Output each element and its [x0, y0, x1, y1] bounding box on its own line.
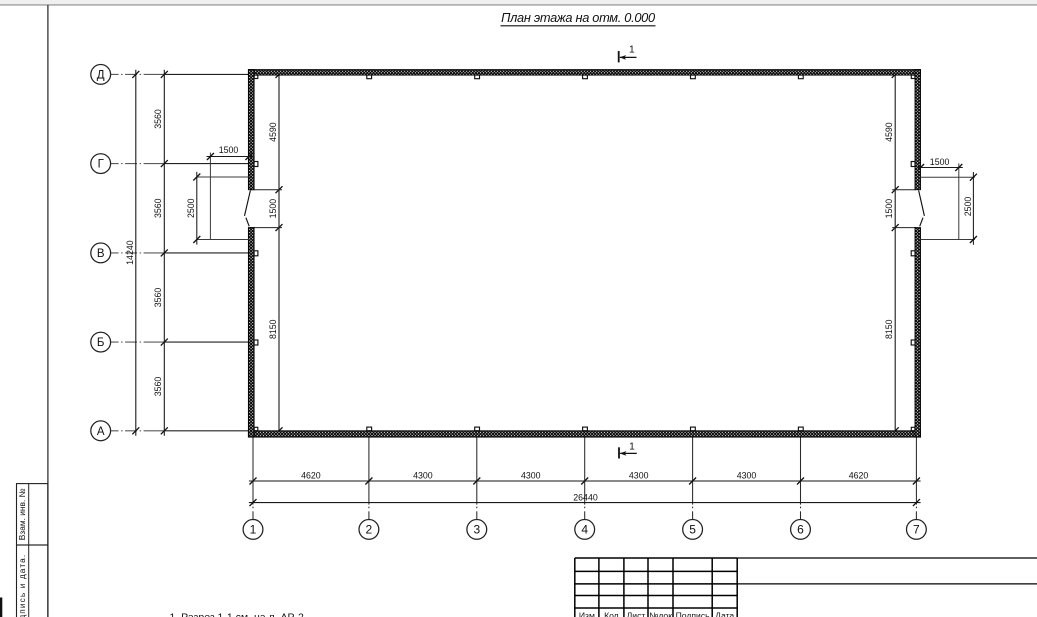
svg-text:2: 2: [366, 523, 373, 537]
svg-text:1: 1: [250, 523, 257, 537]
svg-text:Подпись и дата.: Подпись и дата.: [17, 554, 27, 617]
svg-text:26440: 26440: [573, 492, 598, 502]
svg-text:5: 5: [689, 523, 696, 537]
svg-text:6: 6: [797, 523, 804, 537]
svg-text:4: 4: [581, 523, 588, 537]
svg-text:Дата: Дата: [715, 610, 734, 617]
svg-text:Лист: Лист: [627, 610, 646, 617]
svg-text:1500: 1500: [884, 199, 894, 219]
svg-text:4590: 4590: [884, 122, 894, 142]
svg-text:Взам. инв. №: Взам. инв. №: [17, 488, 27, 540]
svg-text:7: 7: [913, 523, 920, 537]
svg-text:1: 1: [629, 441, 635, 452]
svg-text:Изм: Изм: [579, 610, 595, 617]
svg-text:2500: 2500: [963, 197, 973, 217]
svg-text:1: 1: [629, 44, 635, 55]
svg-text:3: 3: [473, 523, 480, 537]
svg-text:4620: 4620: [301, 470, 321, 480]
svg-text:2500: 2500: [186, 198, 196, 218]
svg-text:1500: 1500: [219, 145, 239, 155]
svg-text:3560: 3560: [153, 377, 163, 397]
svg-text:4300: 4300: [413, 470, 433, 480]
svg-text:8150: 8150: [884, 319, 894, 339]
svg-text:1. Разрез 1-1 см. на л. АР-2: 1. Разрез 1-1 см. на л. АР-2: [170, 612, 304, 617]
svg-text:Г: Г: [98, 159, 105, 171]
svg-text:3560: 3560: [153, 288, 163, 308]
svg-text:№док: №док: [649, 610, 672, 617]
svg-text:А: А: [97, 426, 105, 438]
svg-text:4300: 4300: [629, 470, 649, 480]
svg-text:В: В: [97, 248, 105, 260]
svg-text:8150: 8150: [268, 319, 278, 339]
svg-text:Кол: Кол: [604, 610, 619, 617]
svg-text:4300: 4300: [737, 470, 757, 480]
svg-text:Д: Д: [97, 70, 105, 82]
svg-text:Подпись: Подпись: [676, 610, 711, 617]
svg-text:14240: 14240: [125, 240, 135, 265]
svg-text:4590: 4590: [268, 122, 278, 142]
svg-text:1500: 1500: [930, 157, 950, 167]
svg-text:3560: 3560: [153, 109, 163, 129]
svg-text:1500: 1500: [268, 199, 278, 219]
svg-text:4620: 4620: [849, 470, 869, 480]
svg-text:План этажа на отм. 0.000: План этажа на отм. 0.000: [501, 10, 656, 25]
svg-text:Б: Б: [97, 337, 105, 349]
svg-text:4300: 4300: [521, 470, 541, 480]
svg-text:3560: 3560: [153, 198, 163, 218]
